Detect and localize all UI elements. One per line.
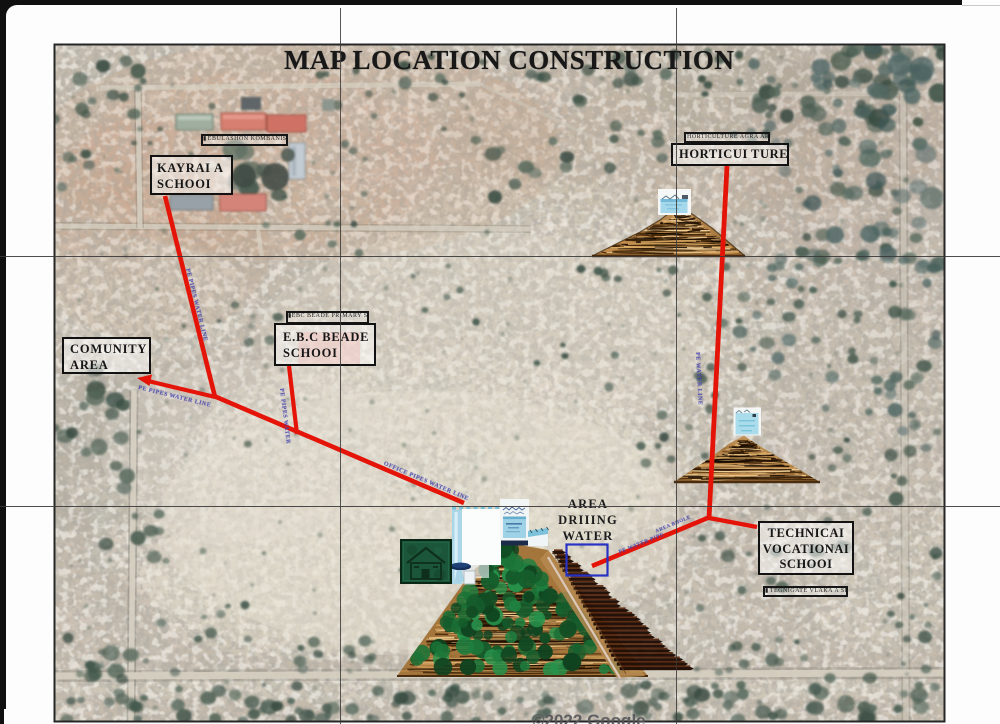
svg-text:©2022 Google: ©2022 Google [532,711,646,724]
